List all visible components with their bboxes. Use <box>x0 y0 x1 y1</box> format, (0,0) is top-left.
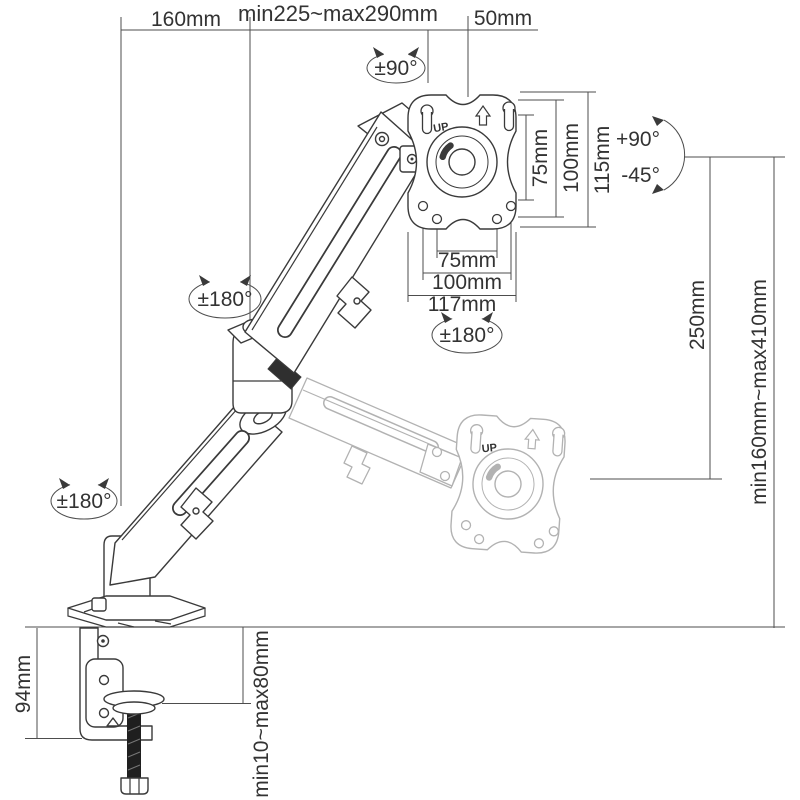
base-cable-tab <box>92 598 106 611</box>
rot-vesa-rotate-label: ±90° <box>374 57 417 80</box>
dim-vesa-100h-label: 100mm <box>432 271 502 294</box>
dim-height-range-label: min160mm~max410mm <box>748 279 771 505</box>
rotation-indicator-vesa-rotate: ±90° <box>367 47 425 83</box>
dim-clamp-height-label: 94mm <box>12 655 35 713</box>
upper-arm-pivot-hole <box>380 137 385 142</box>
vesa-plate-ghost <box>449 413 566 554</box>
rotation-indicator-base: ±180° <box>51 478 117 519</box>
dim-desk-thickness-label: min10~max80mm <box>250 630 273 797</box>
diagram-canvas: UP 160mm min225~max290mm 50mm 75mm 100mm… <box>0 0 800 800</box>
desk-clamp <box>80 628 164 794</box>
dim-vesa-75v-label: 75mm <box>529 129 552 187</box>
monitor-arm-dimension-diagram: UP 160mm min225~max290mm 50mm 75mm 100mm… <box>0 0 800 800</box>
tilt-up-label: +90° <box>616 128 660 151</box>
dim-vesa-115v-label: 115mm <box>591 126 614 194</box>
upper-arm <box>245 103 430 373</box>
desk-base <box>68 596 205 627</box>
dim-vesa-100v-label: 100mm <box>560 123 583 193</box>
clamp-panel-hole <box>100 709 109 718</box>
rotation-indicator-vesa-swivel: ±180° <box>432 312 502 353</box>
cable-clip-hole <box>354 298 360 304</box>
clamp-panel-hole <box>100 676 109 685</box>
ghost-arm-lowered-position <box>289 378 567 555</box>
ghost-link-pivot <box>441 472 450 481</box>
dim-vesa-75h-label: 75mm <box>438 249 496 272</box>
rot-upper-arm-label: ±180° <box>198 288 253 311</box>
dim-head-offset-label: 50mm <box>474 7 532 30</box>
tilt-indicator: +90° -45° <box>616 116 685 194</box>
dim-vesa-117h-label: 117mm <box>428 293 496 316</box>
dim-front-arm-range-label: min225~max290mm <box>238 1 438 26</box>
rot-base-swivel-label: ±180° <box>57 490 112 513</box>
rot-vesa-swivel-label: ±180° <box>440 324 495 347</box>
cable-clip-hole <box>193 508 199 514</box>
dim-height-travel-label: 250mm <box>686 280 709 350</box>
clamp-pad-hub <box>113 702 155 714</box>
head-tilt-screw-center <box>411 158 414 161</box>
tilt-arc <box>664 120 685 190</box>
ghost-link-pivot <box>433 448 442 457</box>
tilt-down-label: -45° <box>621 164 660 187</box>
base-top-face <box>68 596 205 620</box>
vesa-plate <box>408 95 516 229</box>
clamp-top-hole-center <box>101 639 105 643</box>
clamp-screw-knob <box>121 778 148 794</box>
lower-arm <box>110 393 292 585</box>
rotation-arrowheads-icon <box>199 275 251 286</box>
dim-rear-arm-label: 160mm <box>151 8 221 31</box>
rotation-arrowheads-icon <box>59 478 109 489</box>
